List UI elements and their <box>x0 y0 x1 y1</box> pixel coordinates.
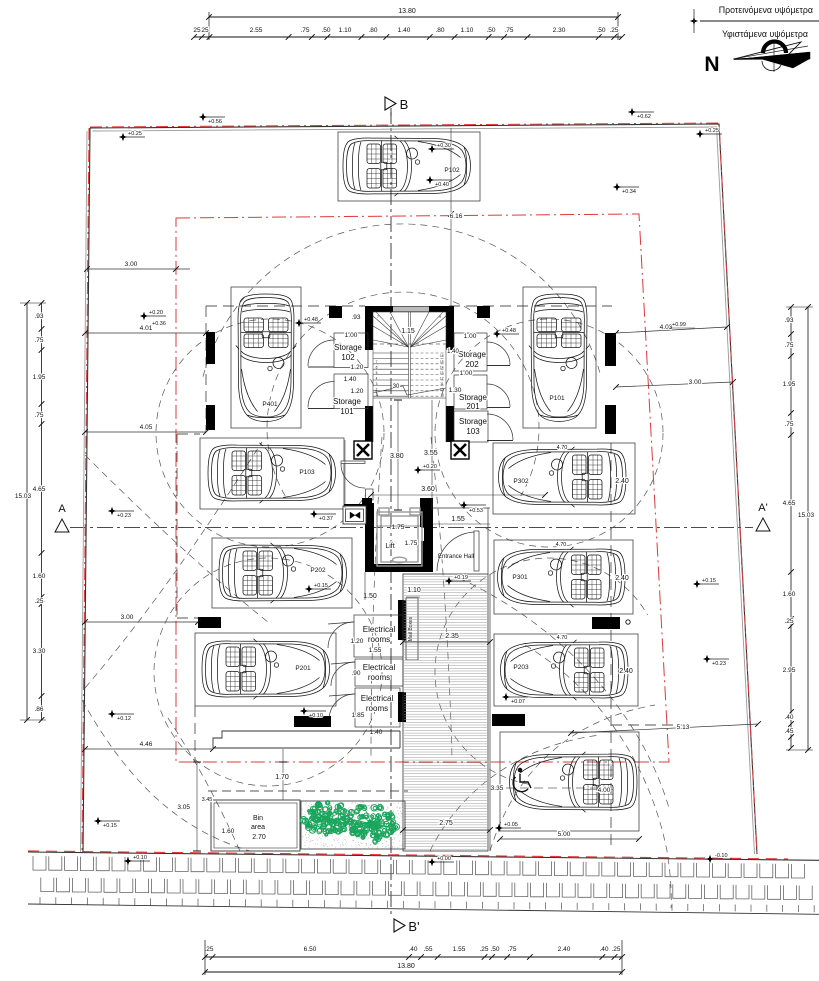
svg-text:+0.34: +0.34 <box>622 189 636 195</box>
svg-text:P401: P401 <box>262 401 278 408</box>
svg-text:P202: P202 <box>310 567 326 574</box>
svg-text:+0.99: +0.99 <box>672 322 686 328</box>
svg-text:4.00: 4.00 <box>598 787 611 794</box>
svg-text:102: 102 <box>341 353 355 362</box>
svg-text:11: 11 <box>440 382 444 386</box>
svg-text:Storage: Storage <box>334 343 363 352</box>
svg-text:N: N <box>704 53 719 76</box>
svg-text:7: 7 <box>377 315 379 319</box>
svg-text:3: 3 <box>376 382 378 386</box>
svg-text:+0.53: +0.53 <box>469 508 483 514</box>
svg-text:5: 5 <box>376 371 378 375</box>
svg-text:.86: .86 <box>34 706 43 713</box>
svg-text:+0.48: +0.48 <box>304 317 318 323</box>
svg-text:.75: .75 <box>34 412 43 419</box>
svg-text:rooms: rooms <box>368 673 390 682</box>
svg-text:1.60: 1.60 <box>222 828 235 835</box>
svg-text:+0.40: +0.40 <box>435 182 449 188</box>
svg-text:6.50: 6.50 <box>304 946 317 953</box>
svg-text:30: 30 <box>393 384 400 390</box>
svg-text:6: 6 <box>376 366 378 370</box>
svg-text:2.35: 2.35 <box>445 633 459 640</box>
svg-text:3.60: 3.60 <box>421 486 435 493</box>
svg-text:3.35: 3.35 <box>491 785 504 792</box>
svg-text:.50: .50 <box>490 946 499 953</box>
svg-text:1.10: 1.10 <box>339 27 352 34</box>
svg-text:area: area <box>251 824 265 831</box>
svg-text:P101: P101 <box>549 395 565 402</box>
svg-text:2.55: 2.55 <box>250 27 263 34</box>
svg-text:4.46: 4.46 <box>140 741 153 748</box>
svg-text:4.70: 4.70 <box>557 445 568 451</box>
svg-text:1.70: 1.70 <box>275 774 289 781</box>
svg-text:2.75: 2.75 <box>439 820 453 827</box>
svg-text:1.40: 1.40 <box>447 349 459 355</box>
svg-text:rooms: rooms <box>366 704 388 713</box>
svg-text:P103: P103 <box>299 469 315 476</box>
svg-text:.40: .40 <box>784 714 793 721</box>
svg-text:3.00: 3.00 <box>689 379 702 386</box>
svg-text:.75: .75 <box>504 27 513 34</box>
svg-text:1.20: 1.20 <box>351 388 364 395</box>
svg-text:+0.23: +0.23 <box>712 661 726 667</box>
svg-text:+0.20: +0.20 <box>149 310 163 316</box>
svg-text:1.15: 1.15 <box>401 328 415 335</box>
svg-text:+0.10: +0.10 <box>133 855 147 861</box>
svg-text:.25: .25 <box>34 598 43 605</box>
svg-text:13: 13 <box>440 371 444 375</box>
svg-text:+0.62: +0.62 <box>637 114 651 120</box>
svg-text:.25: .25 <box>204 946 213 953</box>
svg-text:4.05: 4.05 <box>140 424 153 431</box>
svg-text:+0.12: +0.12 <box>117 716 131 722</box>
svg-text:Entrance Hall: Entrance Hall <box>438 554 474 560</box>
svg-text:.93: .93 <box>34 313 43 320</box>
svg-text:4.70: 4.70 <box>556 542 567 548</box>
svg-text:4.65: 4.65 <box>783 500 796 507</box>
svg-text:2.70: 2.70 <box>252 834 266 841</box>
svg-text:1.20: 1.20 <box>351 364 364 371</box>
svg-text:Υφιστάμενα υψόμετρα: Υφιστάμενα υψόμετρα <box>722 29 808 39</box>
svg-text:3.30: 3.30 <box>33 648 46 655</box>
svg-text:25: 25 <box>193 27 201 34</box>
svg-text:9: 9 <box>439 315 441 319</box>
svg-text:Bin: Bin <box>253 815 263 822</box>
svg-text:14: 14 <box>440 366 444 370</box>
svg-text:3.55: 3.55 <box>424 450 438 457</box>
svg-text:+0.25: +0.25 <box>128 131 142 137</box>
svg-text:rooms: rooms <box>368 635 390 644</box>
svg-text:A': A' <box>758 502 767 514</box>
svg-text:5.00: 5.00 <box>558 831 571 838</box>
svg-text:1.60: 1.60 <box>783 591 796 598</box>
svg-text:3.45: 3.45 <box>202 797 213 803</box>
svg-text:.93: .93 <box>351 314 360 321</box>
svg-text:9: 9 <box>442 393 444 397</box>
svg-text:201: 201 <box>466 402 480 411</box>
svg-text:-0.10: -0.10 <box>715 853 728 859</box>
svg-text:.93: .93 <box>784 317 793 324</box>
svg-text:B': B' <box>408 919 419 934</box>
svg-text:.50: .50 <box>486 27 495 34</box>
svg-text:.75: .75 <box>34 337 43 344</box>
svg-text:1.40: 1.40 <box>370 729 383 736</box>
svg-text:1.55: 1.55 <box>451 516 465 523</box>
svg-text:25: 25 <box>201 27 209 34</box>
svg-text:+0.15: +0.15 <box>702 578 716 584</box>
svg-text:Storage: Storage <box>459 393 488 402</box>
svg-text:+0.56: +0.56 <box>208 119 222 125</box>
svg-text:P201: P201 <box>295 665 311 672</box>
svg-text:1.95: 1.95 <box>783 381 796 388</box>
svg-text:Storage: Storage <box>333 397 362 406</box>
svg-text:+0.07: +0.07 <box>511 699 525 705</box>
svg-text:12: 12 <box>440 377 444 381</box>
svg-text:+0.37: +0.37 <box>319 516 333 522</box>
svg-text:4.70: 4.70 <box>557 635 568 641</box>
svg-text:13.80: 13.80 <box>398 8 416 15</box>
svg-text:1.00: 1.00 <box>460 370 473 377</box>
svg-text:202: 202 <box>465 360 479 369</box>
svg-text:.55: .55 <box>423 946 432 953</box>
svg-text:1.10: 1.10 <box>461 27 474 34</box>
svg-text:1.75: 1.75 <box>392 524 405 531</box>
svg-text:13.80: 13.80 <box>397 963 415 970</box>
svg-text:Electrical: Electrical <box>363 625 396 634</box>
svg-text:.50: .50 <box>321 27 330 34</box>
svg-text:4: 4 <box>376 377 378 381</box>
svg-text:1.30: 1.30 <box>449 387 462 394</box>
svg-text:15.03: 15.03 <box>15 493 32 500</box>
svg-text:+0.15: +0.15 <box>314 583 328 589</box>
svg-text:2.40: 2.40 <box>615 478 629 485</box>
svg-text:1: 1 <box>376 393 378 397</box>
svg-text:1.40: 1.40 <box>398 27 411 34</box>
svg-text:1.00: 1.00 <box>345 332 358 339</box>
svg-text:3.00: 3.00 <box>121 614 134 621</box>
svg-text:1.00: 1.00 <box>464 333 477 340</box>
svg-text:1.95: 1.95 <box>33 374 46 381</box>
svg-text:10: 10 <box>440 388 444 392</box>
svg-text:1.75: 1.75 <box>405 540 418 547</box>
svg-text:4.65: 4.65 <box>33 486 46 493</box>
svg-text:+0.15: +0.15 <box>103 823 117 829</box>
svg-text:1.85: 1.85 <box>352 712 365 719</box>
svg-text:.80: .80 <box>368 27 377 34</box>
svg-text:+0.20: +0.20 <box>423 464 437 470</box>
svg-text:.75: .75 <box>784 421 793 428</box>
svg-text:7: 7 <box>376 360 378 364</box>
svg-text:+0.05: +0.05 <box>504 822 518 828</box>
svg-text:Electrical: Electrical <box>363 663 396 672</box>
svg-text:Προτεινόμενα υψόμετρα: Προτεινόμενα υψόμετρα <box>719 5 813 15</box>
svg-text:2.40: 2.40 <box>558 946 571 953</box>
svg-text:15: 15 <box>440 360 444 364</box>
svg-text:1.10: 1.10 <box>407 587 421 594</box>
svg-text:2.40: 2.40 <box>615 575 629 582</box>
svg-text:3.80: 3.80 <box>390 453 404 460</box>
svg-text:A: A <box>58 503 66 515</box>
svg-text:Electrical: Electrical <box>361 694 394 703</box>
svg-text:+0.10: +0.10 <box>309 713 323 719</box>
svg-text:.50: .50 <box>596 27 605 34</box>
svg-text:101: 101 <box>340 407 354 416</box>
svg-text:16: 16 <box>440 354 444 358</box>
svg-text:+0.23: +0.23 <box>117 513 131 519</box>
svg-text:Mail Boxes: Mail Boxes <box>408 616 414 641</box>
svg-text:+0.25: +0.25 <box>705 128 719 134</box>
svg-text:1.55: 1.55 <box>453 946 466 953</box>
svg-text:3.05: 3.05 <box>177 804 190 811</box>
svg-text:P102: P102 <box>444 167 460 174</box>
svg-text:.75: .75 <box>784 342 793 349</box>
svg-text:.25: .25 <box>611 946 620 953</box>
svg-text:P203: P203 <box>513 664 529 671</box>
svg-text:Lift: Lift <box>385 543 394 550</box>
svg-text:Storage: Storage <box>459 417 488 426</box>
svg-text:5.13: 5.13 <box>677 724 690 731</box>
svg-text:.25: .25 <box>784 618 793 625</box>
svg-text:.40: .40 <box>408 946 417 953</box>
svg-text:P301: P301 <box>512 574 528 581</box>
svg-text:.40: .40 <box>599 946 608 953</box>
svg-text:103: 103 <box>466 427 480 436</box>
svg-text:4.03: 4.03 <box>660 324 673 331</box>
svg-text:.25: .25 <box>479 946 488 953</box>
svg-text:1.60: 1.60 <box>33 573 46 580</box>
svg-text:2.30: 2.30 <box>553 27 566 34</box>
svg-text:1.20: 1.20 <box>351 638 364 645</box>
svg-text:1.40: 1.40 <box>344 376 357 383</box>
svg-text:.75: .75 <box>300 27 309 34</box>
svg-text:15.03: 15.03 <box>798 512 815 519</box>
svg-text:4.01: 4.01 <box>140 325 153 332</box>
svg-text:2: 2 <box>376 388 378 392</box>
svg-text:2.40: 2.40 <box>619 668 633 675</box>
svg-text:.45: .45 <box>784 728 793 735</box>
svg-text:+0.30: +0.30 <box>437 143 451 149</box>
svg-text:1.55: 1.55 <box>369 647 382 654</box>
svg-text:.80: .80 <box>435 27 444 34</box>
svg-text:.75: .75 <box>507 946 516 953</box>
svg-text:+0.00: +0.00 <box>437 856 451 862</box>
svg-text:Storage: Storage <box>458 350 487 359</box>
svg-text:P302: P302 <box>513 478 529 485</box>
svg-text:+0.19: +0.19 <box>454 575 468 581</box>
svg-text:B: B <box>400 97 409 112</box>
svg-text:+0.48: +0.48 <box>502 328 516 334</box>
svg-text:.90: .90 <box>351 670 360 677</box>
svg-text:6.16: 6.16 <box>450 213 463 220</box>
svg-text:+0.36: +0.36 <box>152 321 166 327</box>
svg-text:2.95: 2.95 <box>783 667 796 674</box>
svg-text:.25: .25 <box>609 27 618 34</box>
svg-text:3.00: 3.00 <box>125 261 138 268</box>
